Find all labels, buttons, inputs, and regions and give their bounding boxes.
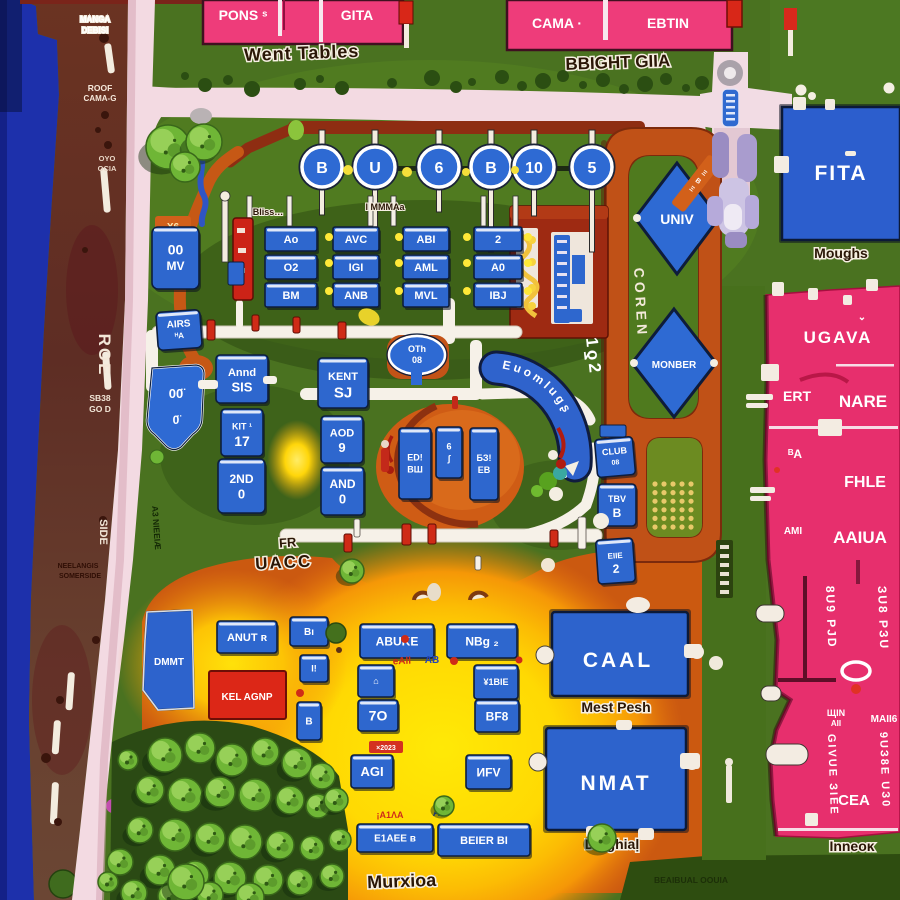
svg-text:PONS ˢ: PONS ˢ [219,7,268,23]
svg-text:CEA: CEA [838,792,870,809]
svg-text:FR: FR [279,534,298,550]
svg-text:08: 08 [611,459,619,467]
svg-text:6: 6 [446,442,451,452]
svg-text:00: 00 [168,242,184,258]
svg-text:CAMA-G: CAMA-G [84,94,117,103]
svg-text:KIT ¹: KIT ¹ [232,422,252,432]
svg-text:UGAVA: UGAVA [804,328,873,347]
svg-text:CAMA ·: CAMA · [532,15,582,31]
svg-text:Annd: Annd [228,367,256,379]
svg-text:l MMMAa: l MMMAa [366,202,406,212]
svg-text:FITA: FITA [814,162,867,185]
svg-text:Inneoĸ: Inneoĸ [829,838,874,854]
svg-text:0: 0 [238,487,245,502]
svg-text:ROOF: ROOF [88,83,113,93]
svg-text:OCIA: OCIA [98,164,117,173]
svg-text:B: B [316,160,328,177]
svg-text:UACC: UACC [255,552,313,574]
svg-text:I!: I! [311,664,317,674]
svg-text:SOMERSIDE: SOMERSIDE [59,573,101,580]
svg-text:KENT: KENT [328,371,358,383]
svg-text:Ao: Ao [284,234,299,246]
svg-text:B: B [485,160,497,177]
svg-text:SIS: SIS [232,380,253,395]
svg-text:AML: AML [414,262,438,274]
svg-text:NEELANGIS: NEELANGIS [58,563,99,570]
svg-text:7O: 7O [369,708,388,724]
svg-text:GITA: GITA [341,7,373,23]
svg-text:ANUT ʀ: ANUT ʀ [227,632,268,644]
svg-text:ИFV: ИFV [477,765,501,779]
svg-text:ЩIN: ЩIN [827,708,845,718]
svg-text:KEL AGNP: KEL AGNP [221,692,272,703]
svg-text:MONBER: MONBER [652,360,697,371]
svg-text:2ND: 2ND [229,472,253,486]
svg-text:Bı: Bı [304,627,314,638]
svg-text:⌂: ⌂ [373,676,378,686]
svg-text:BEAIBUAL OOUIA: BEAIBUAL OOUIA [654,875,728,885]
svg-text:IGI: IGI [349,262,364,274]
svg-text:0: 0 [339,492,346,507]
svg-text:DEBISI: DEBISI [82,26,109,35]
svg-text:eAll: eAll [393,656,412,668]
svg-text:IBJ: IBJ [489,290,506,302]
svg-text:8U9 PJD: 8U9 PJD [823,586,839,649]
svg-text:ᴮA: ᴮA [788,447,802,461]
svg-text:¥1BIE: ¥1BIE [483,677,508,687]
svg-text:SJ: SJ [334,384,352,401]
svg-text:Murxioa: Murxioa [367,870,438,892]
svg-text:MVL: MVL [414,290,438,302]
svg-text:ABI: ABI [417,234,436,246]
svg-text:FHLE: FHLE [844,474,886,491]
svg-text:OTh: OTh [408,344,426,354]
svg-text:¡A1ΛA: ¡A1ΛA [376,810,404,820]
svg-text:1ƍ2: 1ƍ2 [582,336,605,376]
svg-text:ᴴA: ᴴA [174,331,184,341]
svg-text:×2023: ×2023 [376,745,396,752]
svg-text:MANGA: MANGA [80,15,110,24]
svg-text:ЕВ: ЕВ [478,465,491,475]
svg-text:ERT: ERT [783,388,811,404]
svg-text:EBTIN: EBTIN [647,15,689,31]
svg-text:U: U [369,160,381,177]
svg-text:9: 9 [338,440,345,455]
svg-text:2: 2 [495,234,501,246]
svg-text:Mest Pesh: Mest Pesh [581,699,650,715]
svg-text:AOD: AOD [330,427,355,439]
svg-text:NBg ₂: NBg ₂ [465,634,498,648]
svg-text:AVC: AVC [345,234,367,246]
svg-text:6: 6 [435,160,444,177]
svg-text:AGI: AGI [360,764,383,779]
svg-text:Went Tables: Went Tables [244,41,360,65]
svg-text:10: 10 [525,160,543,177]
svg-text:AAIUA: AAIUA [833,528,887,547]
svg-text:MAII6: MAII6 [871,714,898,725]
svg-text:SB38: SB38 [89,393,111,403]
svg-text:ED!: ED! [407,453,423,463]
svg-text:⌄: ⌄ [858,312,866,323]
svg-text:B: B [305,717,312,728]
svg-text:AII: AII [831,719,841,728]
svg-text:ANB: ANB [344,290,368,302]
svg-text:BШ: BШ [407,465,423,475]
svg-text:BEIER BI: BEIER BI [460,835,508,847]
svg-text:БЗ!: БЗ! [477,453,492,463]
svg-text:Mouǥhs: Mouǥhs [814,245,868,261]
svg-text:5: 5 [588,160,597,177]
svg-text:OYO: OYO [99,154,116,163]
svg-text:AMI: AMI [784,526,803,537]
svg-text:SIDE: SIDE [97,519,109,545]
svg-text:BBIGHT GIIA: BBIGHT GIIA [565,51,670,74]
svg-text:EIIE: EIIE [607,551,623,561]
svg-text:B: B [613,506,622,520]
svg-text:AB: AB [425,655,439,666]
svg-text:17: 17 [234,433,250,449]
svg-text:DMMT: DMMT [154,657,184,668]
svg-text:A0: A0 [491,262,505,274]
svg-text:GO D: GO D [89,404,111,414]
svg-text:ROE: ROE [95,334,114,377]
svg-text:BM: BM [282,290,299,302]
svg-text:O2: O2 [284,262,299,274]
svg-text:AIRS: AIRS [166,318,191,331]
svg-text:NMAT: NMAT [580,772,651,795]
svg-text:MV: MV [167,259,185,273]
svg-text:Bliss…: Bliss… [253,207,284,217]
svg-text:E1AEE ʙ: E1AEE ʙ [374,834,416,845]
svg-text:NARE: NARE [839,392,887,411]
svg-text:CAAL: CAAL [583,649,653,672]
svg-text:08: 08 [412,355,422,365]
svg-text:ЗU8 PЗU: ЗU8 PЗU [875,586,891,651]
svg-text:BF8: BF8 [486,709,509,723]
svg-text:2: 2 [612,562,620,576]
svg-text:ABUKE: ABUKE [376,634,419,648]
svg-text:AND: AND [330,477,356,491]
svg-text:TBV: TBV [608,494,626,504]
svg-text:UNIV: UNIV [660,211,694,227]
